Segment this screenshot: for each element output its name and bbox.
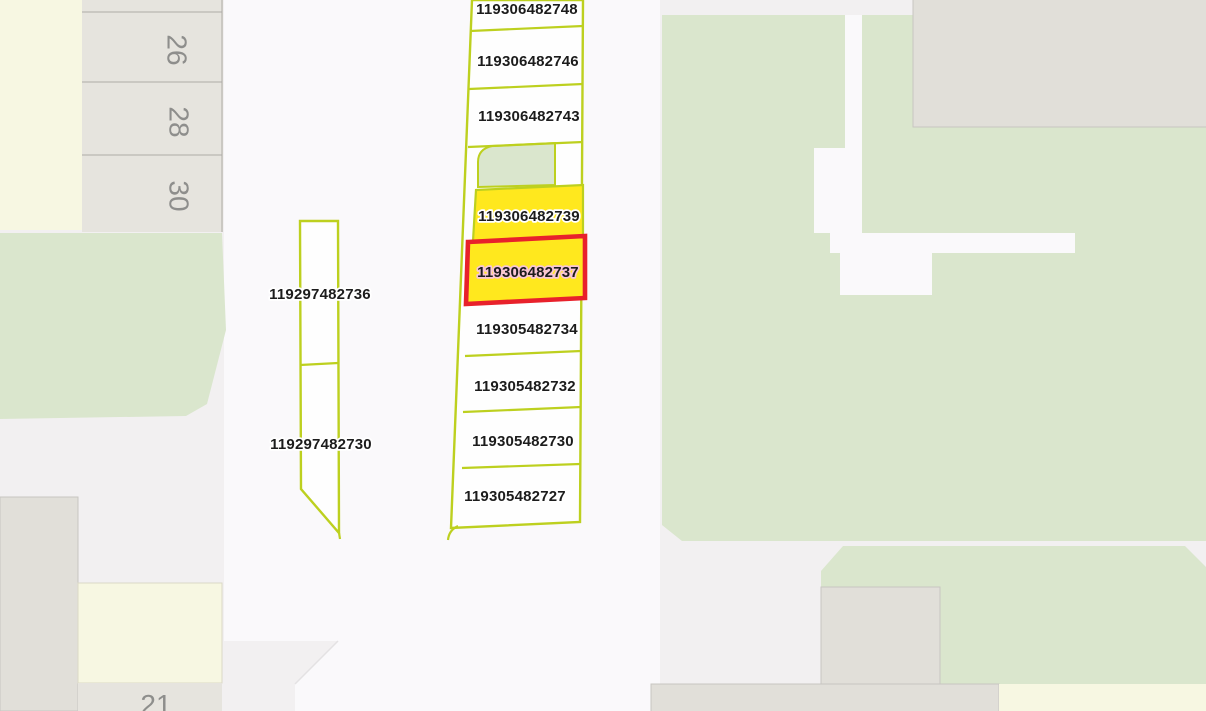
parcel-label: 119305482734 [476, 321, 578, 338]
house-number-30: 30 [164, 180, 195, 211]
map-canvas[interactable]: 119306482748 119306482746 119306482743 1… [0, 0, 1206, 711]
building-strip-west [82, 0, 223, 232]
parcel-label-selected: 119306482737 [477, 264, 579, 281]
building-bottomleft [0, 497, 78, 711]
road-band [224, 0, 660, 711]
parcel-label: 119305482727 [464, 488, 566, 505]
parcel-label: 119297482730 [270, 436, 372, 453]
building-topright [913, 0, 1206, 127]
parcel-tail-west [339, 533, 340, 539]
road-horizontal [830, 233, 1075, 253]
building-southeast [821, 587, 940, 684]
house-number-28: 28 [164, 106, 195, 137]
parcel-label: 119306482746 [477, 53, 579, 70]
parcel-label: 119305482732 [474, 378, 576, 395]
map-viewport[interactable]: 119306482748 119306482746 119306482743 1… [0, 0, 1206, 711]
parcel-green-inset [478, 143, 555, 187]
house-number-partial: 21 [140, 689, 171, 711]
parcel-label: 119306482748 [476, 1, 578, 18]
road-notch [814, 148, 845, 233]
parcel-label: 119306482743 [478, 108, 580, 125]
parcel-label: 119306482739 [478, 208, 580, 225]
greenspace-west [0, 233, 226, 419]
parcel-label: 119305482730 [472, 433, 574, 450]
parcel-119297482736-group[interactable] [300, 221, 339, 533]
landuse-pale-yellow-bottomright [999, 684, 1206, 711]
landuse-pale-yellow-bottomleft [78, 583, 222, 683]
road-vertical [845, 15, 862, 233]
landuse-pale-yellow-topleft [0, 0, 82, 230]
building-strip-bottom [651, 684, 999, 711]
road-plaza [840, 253, 932, 295]
house-number-26: 26 [162, 34, 193, 65]
parcel-label: 119297482736 [269, 286, 371, 303]
